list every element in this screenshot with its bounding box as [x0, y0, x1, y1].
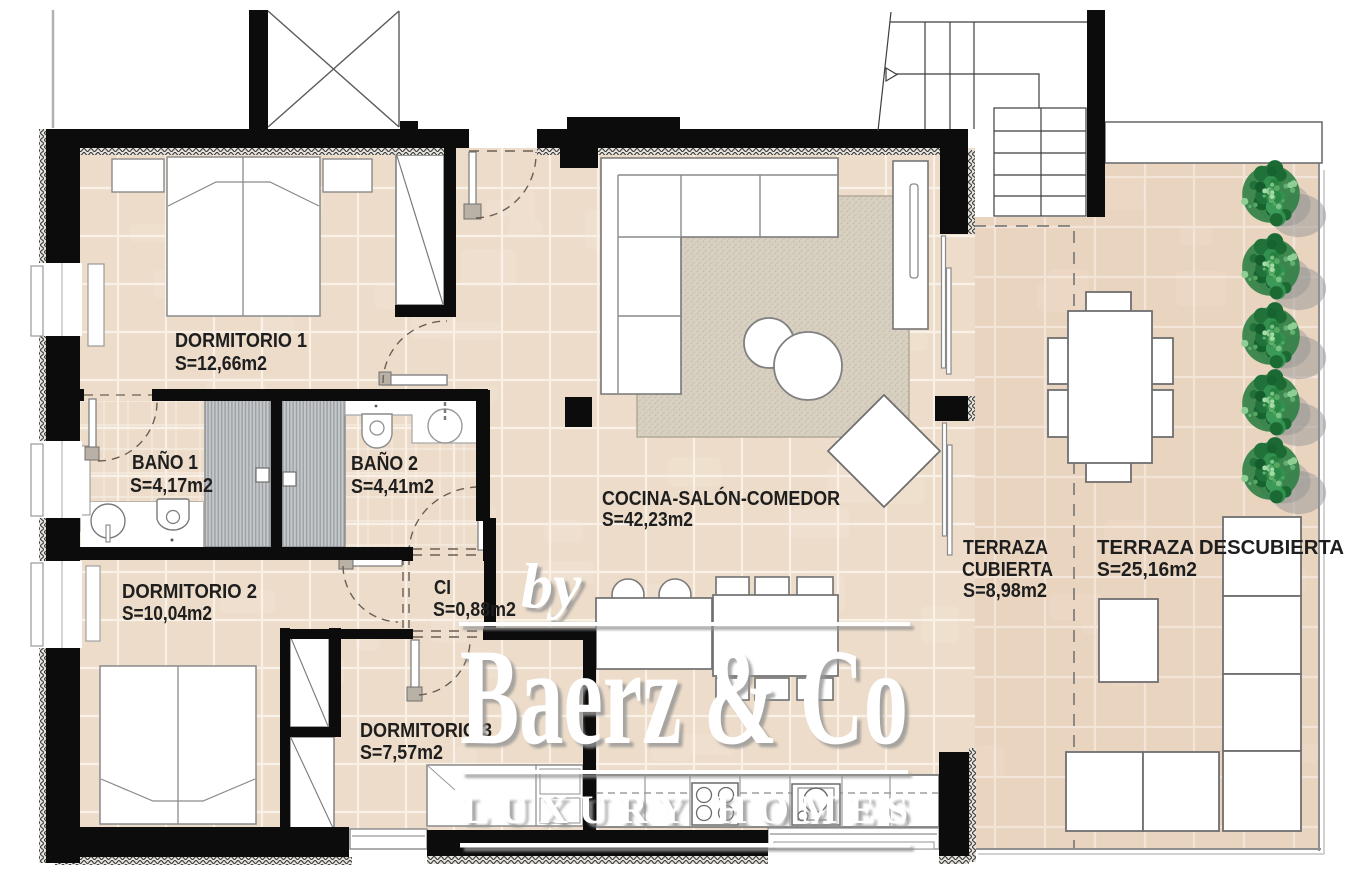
svg-text:DORMITORIO 1: DORMITORIO 1: [175, 330, 307, 352]
svg-text:TERRAZA: TERRAZA: [963, 537, 1048, 559]
svg-text:S=4,17m2: S=4,17m2: [130, 475, 213, 497]
svg-text:by: by: [521, 550, 582, 621]
svg-text:S=0,88m2: S=0,88m2: [433, 599, 516, 621]
svg-text:S=10,04m2: S=10,04m2: [122, 603, 212, 625]
svg-text:S=7,57m2: S=7,57m2: [360, 742, 443, 764]
svg-text:BAÑO 2: BAÑO 2: [351, 452, 418, 475]
svg-text:S=12,66m2: S=12,66m2: [175, 353, 267, 375]
svg-text:TERRAZA DESCUBIERTA: TERRAZA DESCUBIERTA: [1097, 537, 1344, 559]
svg-text:DORMITORIO 2: DORMITORIO 2: [122, 581, 257, 603]
svg-text:CUBIERTA: CUBIERTA: [962, 559, 1053, 581]
svg-text:S=25,16m2: S=25,16m2: [1097, 559, 1197, 581]
svg-text:S=42,23m2: S=42,23m2: [602, 509, 693, 531]
svg-text:S=4,41m2: S=4,41m2: [351, 476, 434, 498]
svg-text:BAÑO 1: BAÑO 1: [132, 451, 198, 474]
svg-text:COCINA-SALÓN-COMEDOR: COCINA-SALÓN-COMEDOR: [602, 486, 840, 510]
svg-text:CI: CI: [434, 577, 451, 599]
svg-text:Baerz & Co: Baerz & Co: [460, 620, 908, 773]
svg-text:S=8,98m2: S=8,98m2: [963, 580, 1047, 602]
